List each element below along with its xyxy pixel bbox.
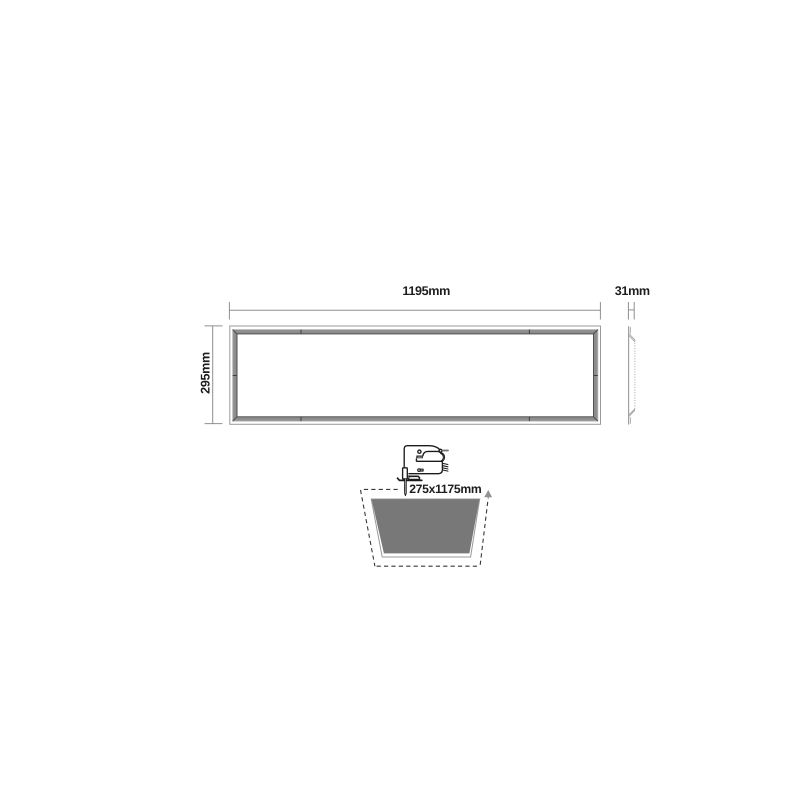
svg-text:275x1175mm: 275x1175mm <box>409 482 482 496</box>
svg-text:295mm: 295mm <box>199 352 213 394</box>
svg-text:31mm: 31mm <box>615 284 650 298</box>
svg-text:1195mm: 1195mm <box>402 284 450 298</box>
